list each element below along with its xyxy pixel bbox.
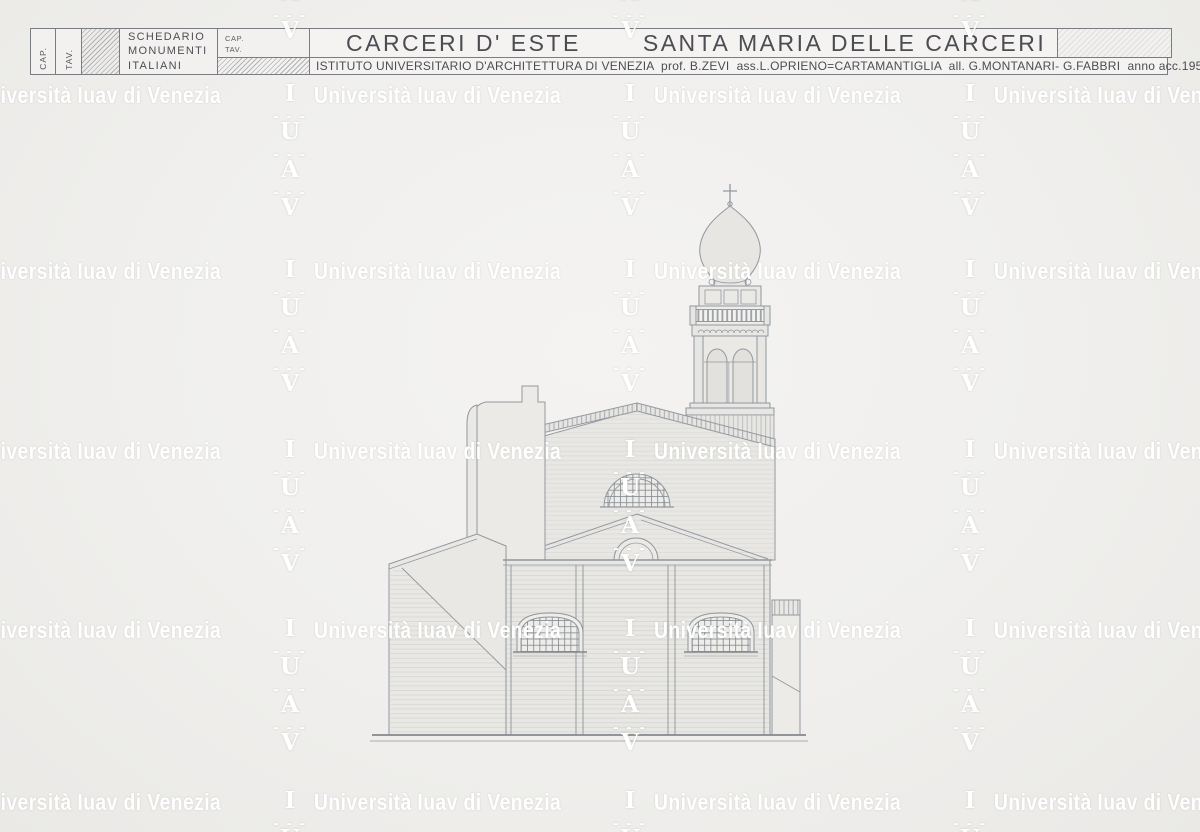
empty-corner-cell — [1057, 28, 1172, 58]
subtitle-text: ISTITUTO UNIVERSITARIO D'ARCHITETTURA DI… — [316, 59, 1200, 73]
cap-column-cell: CAP. — [30, 28, 56, 75]
cap-tav-entry-cell: CAP. TAV. — [217, 28, 310, 75]
left-chapel-block — [467, 386, 545, 560]
cap-small-label: CAP. — [225, 34, 244, 43]
schedario-cell: SCHEDARIO MONUMENTI ITALIANI — [119, 28, 218, 75]
tav-small-label: TAV. — [225, 45, 242, 54]
title-block: CAP. TAV. SCHEDARIO MONUMENTI ITALIANI C… — [30, 28, 1172, 75]
grid-window-left — [513, 613, 587, 656]
title-location: CARCERI D' ESTE — [346, 30, 581, 57]
schedario-line-1: SCHEDARIO — [128, 30, 217, 44]
hatched-strip — [218, 57, 309, 74]
campanile — [686, 184, 774, 440]
cap-vertical-label: CAP. — [38, 47, 48, 70]
church-lower-body — [503, 560, 772, 735]
left-annex — [389, 534, 506, 735]
ground-line — [370, 735, 808, 741]
tav-vertical-label: TAV. — [64, 49, 74, 70]
title-cell: CARCERI D' ESTE SANTA MARIA DELLE CARCER… — [309, 28, 1058, 58]
schedario-line-3: ITALIANI — [128, 59, 217, 73]
title-monument: SANTA MARIA DELLE CARCERI — [643, 30, 1046, 57]
grid-window-right — [684, 613, 758, 656]
church-elevation-drawing — [0, 0, 1200, 832]
subtitle-cell: ISTITUTO UNIVERSITARIO D'ARCHITETTURA DI… — [309, 57, 1168, 75]
scanned-archive-sheet: CAP. TAV. SCHEDARIO MONUMENTI ITALIANI C… — [0, 0, 1200, 832]
hatched-cell — [81, 28, 120, 75]
schedario-line-2: MONUMENTI — [128, 44, 217, 58]
tav-column-cell: TAV. — [55, 28, 82, 75]
right-annex — [772, 600, 800, 735]
